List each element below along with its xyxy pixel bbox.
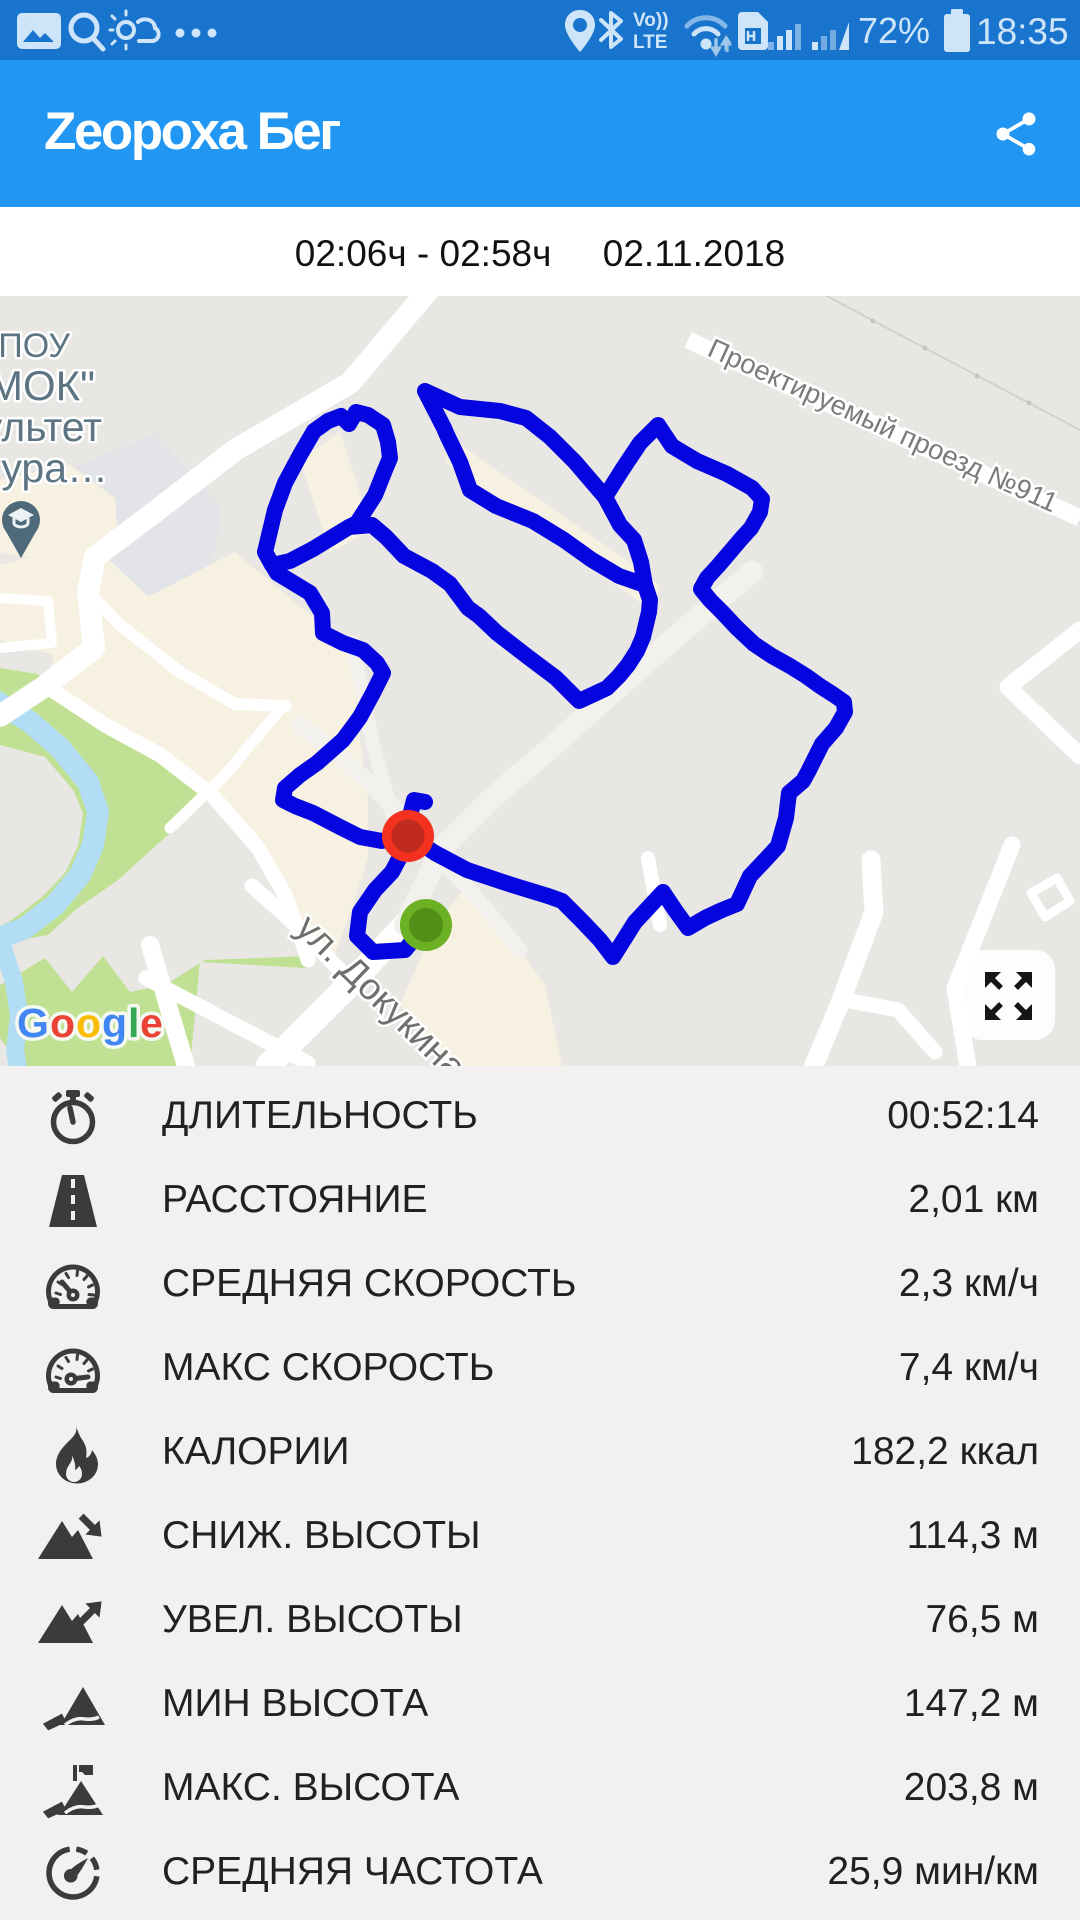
svg-text:ьтура…: ьтура… (0, 445, 108, 491)
svg-text:Vo)): Vo)) (633, 10, 669, 31)
svg-text:LTE: LTE (633, 32, 667, 53)
svg-text:o: o (50, 1000, 75, 1046)
svg-text:18:35: 18:35 (976, 11, 1069, 52)
svg-text:"МОК": "МОК" (0, 362, 95, 409)
svg-text:l: l (128, 1000, 139, 1046)
svg-text:e: e (140, 1000, 163, 1046)
svg-text:o: o (76, 1000, 101, 1046)
svg-text:g: g (102, 1000, 127, 1046)
svg-text:БПОУ: БПОУ (0, 327, 70, 365)
svg-text:ультет: ультет (0, 404, 102, 450)
svg-text:G: G (17, 1000, 49, 1046)
svg-text:72%: 72% (858, 10, 930, 51)
